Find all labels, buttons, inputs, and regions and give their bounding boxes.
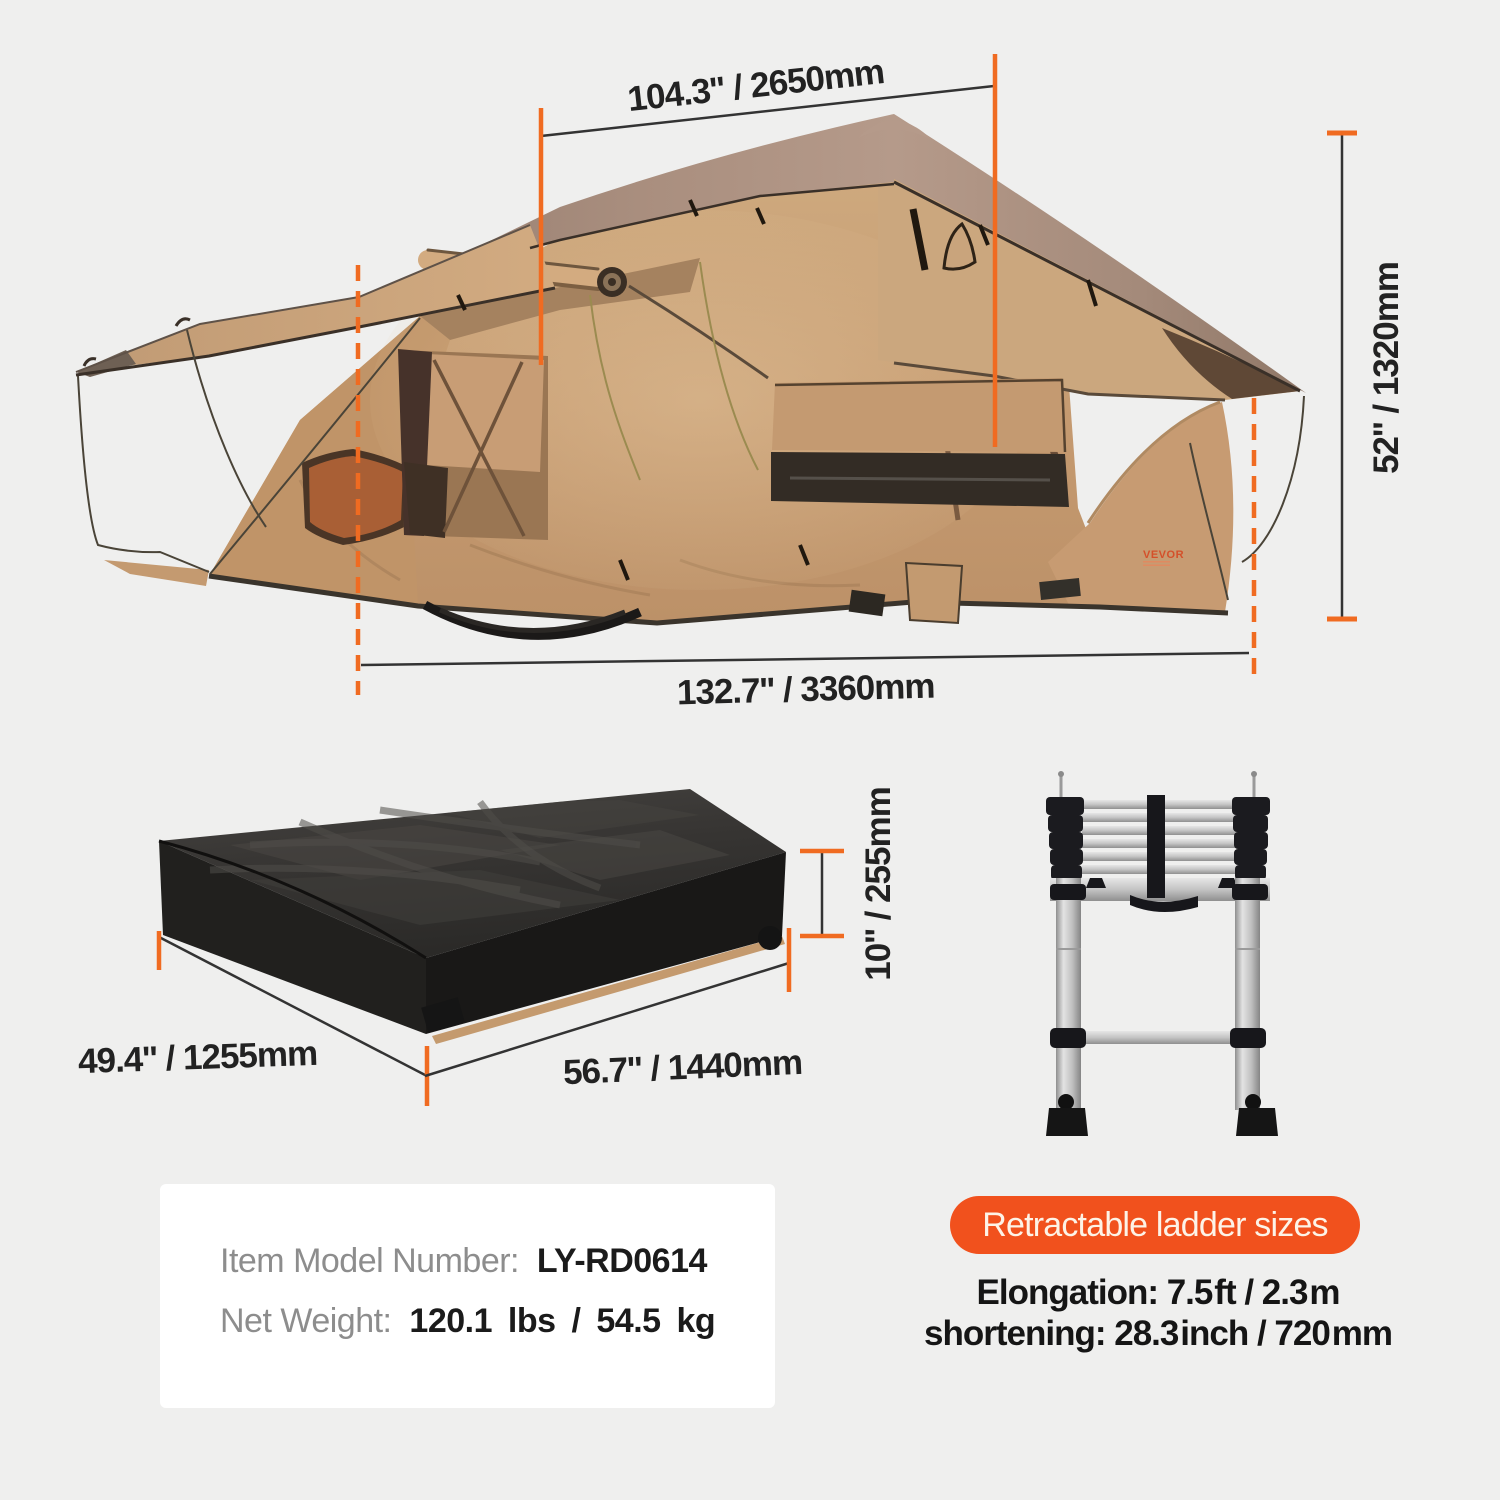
svg-text:VEVOR: VEVOR [1143,549,1184,561]
svg-text:56.7'' / 1440mm: 56.7'' / 1440mm [562,1043,803,1092]
svg-text:10'' / 255mm: 10'' / 255mm [859,787,898,980]
svg-text:49.4'' / 1255mm: 49.4'' / 1255mm [77,1034,317,1081]
svg-text:104.3'' / 2650mm: 104.3'' / 2650mm [626,52,886,119]
svg-text:132.7'' / 3360mm: 132.7'' / 3360mm [676,667,934,713]
svg-text:52'' / 1320mm: 52'' / 1320mm [1367,262,1406,474]
